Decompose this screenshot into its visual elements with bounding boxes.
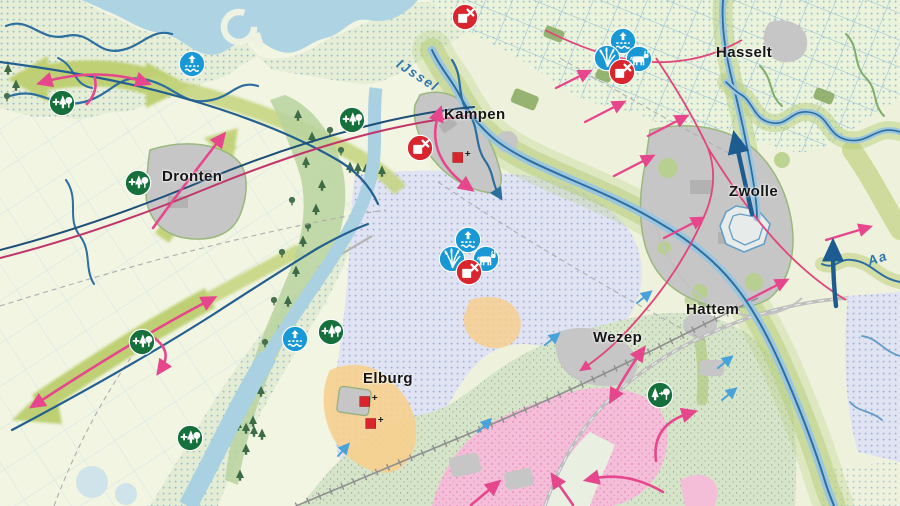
new-forest-icon: [339, 107, 366, 134]
new-forest-icon: [129, 329, 156, 356]
icon-label-overlay: DrontenKampenHasseltZwolleHattemWezepElb…: [0, 0, 900, 506]
no-construction-icon: [407, 135, 434, 162]
town-label-hasselt: Hasselt: [716, 44, 772, 61]
new-forest-icon: [125, 170, 152, 197]
town-label-kampen: Kampen: [444, 106, 506, 123]
water-label-ijssel: IJssel: [394, 56, 442, 94]
town-label-elburg: Elburg: [363, 370, 413, 387]
no-construction-icon: [452, 4, 479, 31]
town-label-zwolle: Zwolle: [729, 183, 778, 200]
no-construction-icon: [609, 59, 636, 86]
town-label-dronten: Dronten: [162, 168, 222, 185]
no-construction-icon: [456, 259, 483, 286]
new-forest-icon: [318, 319, 345, 346]
red-site-marker: [452, 149, 473, 164]
red-site-marker: [359, 393, 380, 408]
map-viewport: DrontenKampenHasseltZwolleHattemWezepElb…: [0, 0, 900, 506]
forest-conversion-icon: [647, 382, 674, 409]
town-label-wezep: Wezep: [593, 329, 642, 346]
red-site-marker: [365, 415, 386, 430]
town-label-hattem: Hattem: [686, 301, 739, 318]
new-forest-icon: [49, 90, 76, 117]
water-level-rise-icon: [282, 326, 309, 353]
water-label-aa: Aa: [866, 248, 890, 269]
new-forest-icon: [177, 425, 204, 452]
water-level-rise-icon: [179, 51, 206, 78]
